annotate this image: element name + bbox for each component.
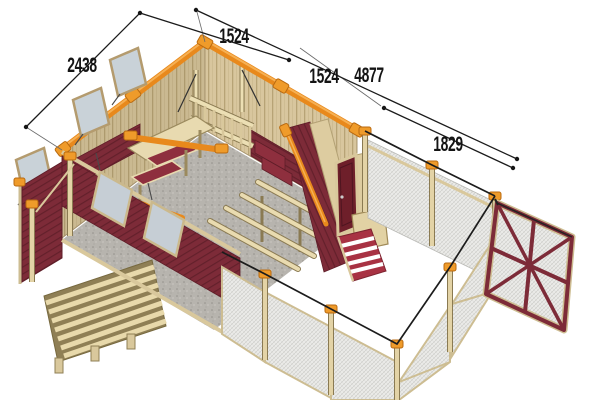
dimension-label-run: 1829 bbox=[433, 133, 463, 157]
dimension-label-overall: 4877 bbox=[354, 64, 384, 88]
dimension-label-back-right: 1524 bbox=[309, 65, 339, 89]
mesh-gate bbox=[486, 199, 572, 330]
dimension-label-left-depth: 2438 bbox=[67, 54, 97, 78]
dimension-label-back-left: 1524 bbox=[219, 25, 249, 49]
coop-plan-figure: 2438 1524 1524 4877 1829 bbox=[0, 0, 600, 400]
